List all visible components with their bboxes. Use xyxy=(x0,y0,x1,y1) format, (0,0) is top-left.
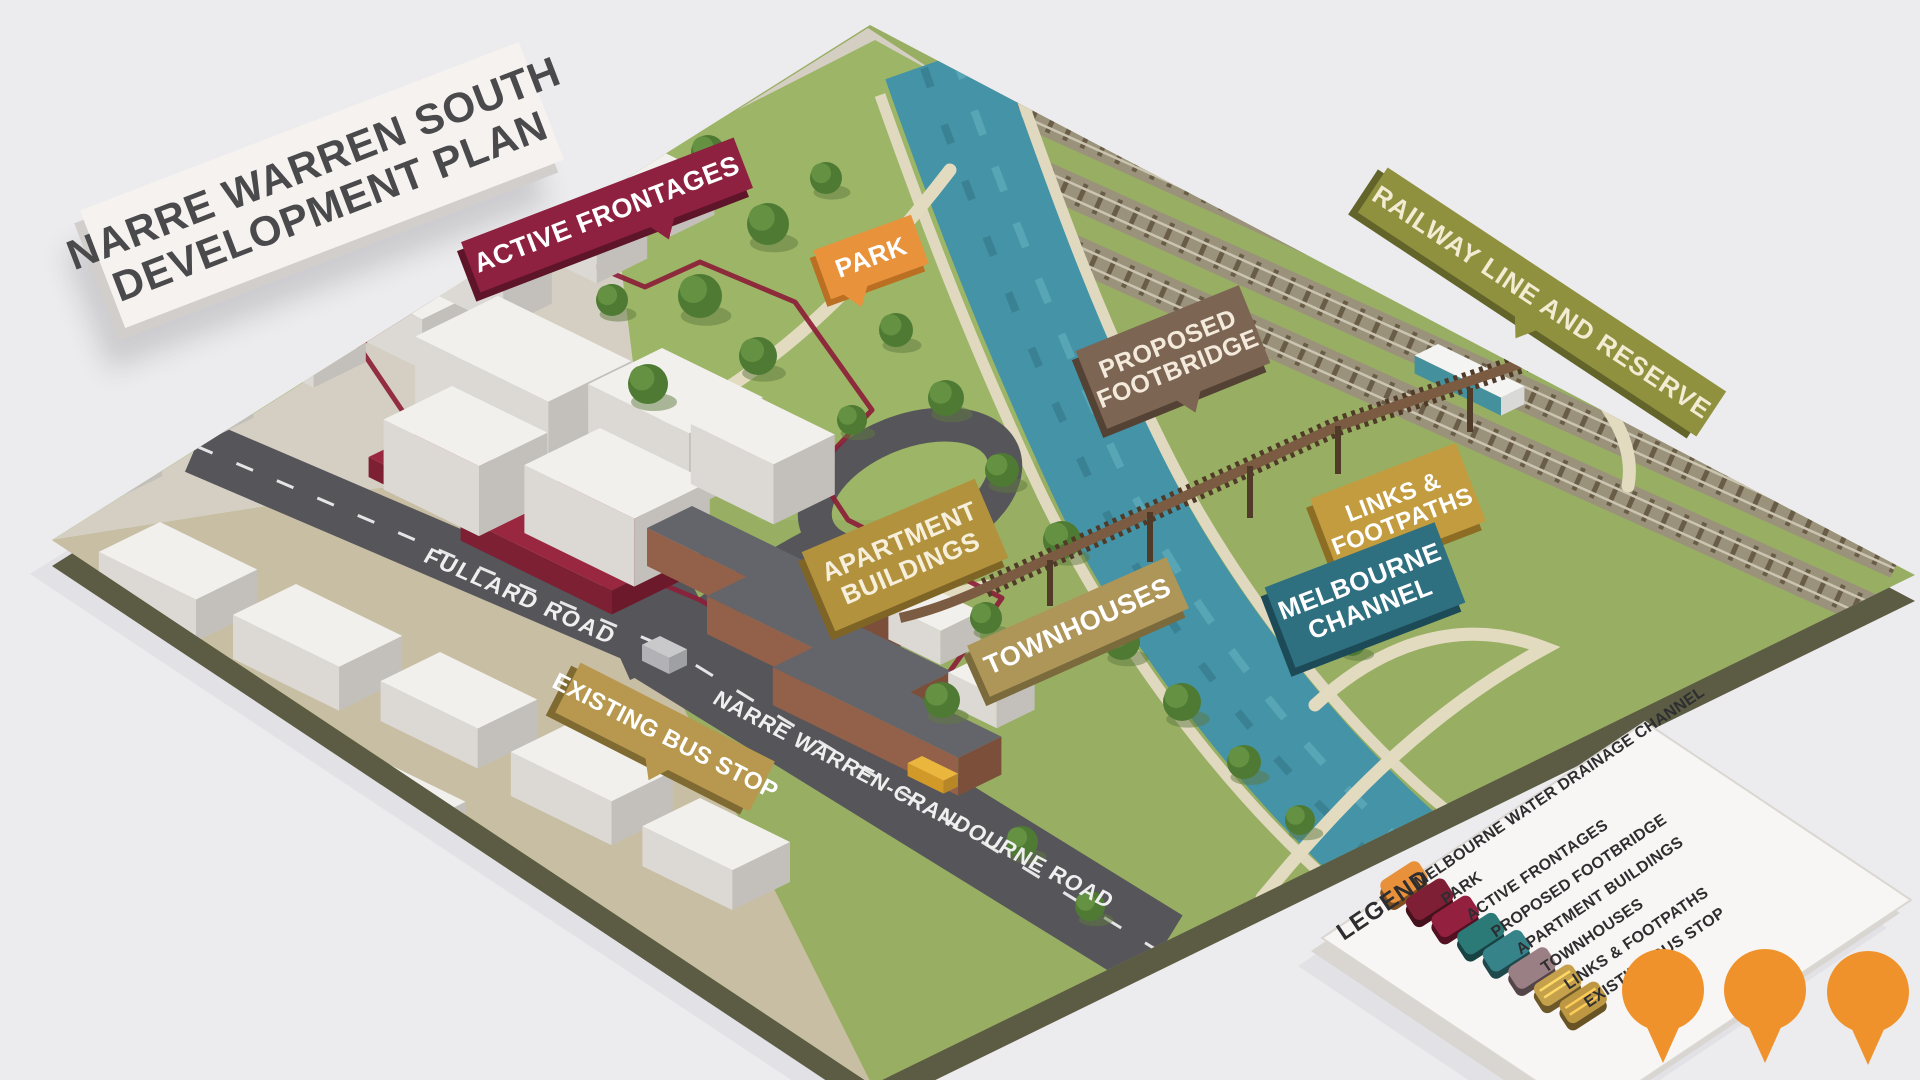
map-pin-icon xyxy=(1622,949,1704,1031)
building-block xyxy=(112,332,253,445)
map-pin-icon xyxy=(1724,949,1806,1031)
development-plan-map: NARRE WARREN SOUTH DEVELOPMENT PLAN ACTI… xyxy=(0,0,1920,1080)
map-pin-icon xyxy=(1827,951,1909,1033)
